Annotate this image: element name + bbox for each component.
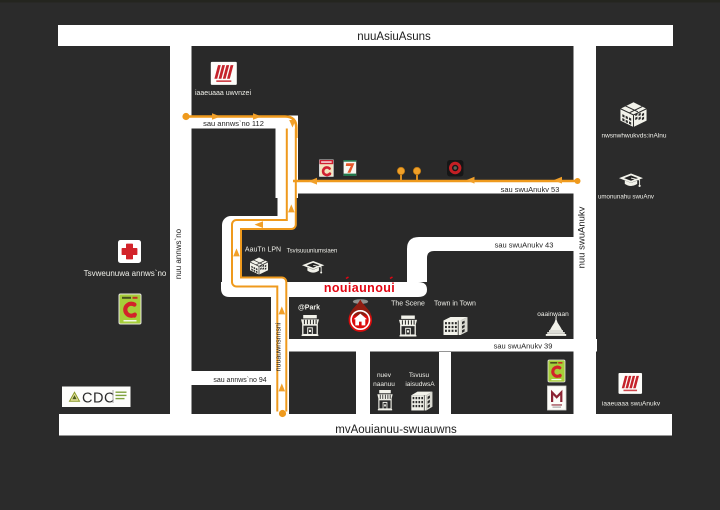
svg-text:AauTn LPN: AauTn LPN bbox=[245, 247, 281, 254]
svg-text:naanuu: naanuu bbox=[373, 381, 395, 388]
svg-text:iaaeuaaa swuAnukv: iaaeuaaa swuAnukv bbox=[602, 401, 661, 408]
svg-text:nuuauwnsnnsni: nuuauwnsnnsni bbox=[275, 322, 282, 371]
svg-text:iaisudwsA: iaisudwsA bbox=[405, 381, 435, 388]
svg-text:nouiaunoui: nouiaunoui bbox=[324, 281, 395, 295]
svg-text:sau annws`no 94: sau annws`no 94 bbox=[213, 377, 266, 384]
svg-text:nuu annws`no: nuu annws`no bbox=[174, 228, 183, 279]
svg-text:Tsvusu: Tsvusu bbox=[409, 372, 430, 379]
svg-text:sau swuAnukv 53: sau swuAnukv 53 bbox=[501, 185, 560, 194]
svg-text:nuuAsiuAsuns: nuuAsiuAsuns bbox=[357, 31, 431, 43]
svg-text:Tsvisuuuniumsiaen: Tsvisuuuniumsiaen bbox=[287, 249, 338, 255]
svg-text:The Scene: The Scene bbox=[391, 301, 425, 308]
svg-text:Town in Town: Town in Town bbox=[434, 301, 476, 308]
svg-text:mvAouianuu-swuauwns: mvAouianuu-swuauwns bbox=[335, 424, 457, 436]
svg-text:Tsvweunuwa annws`no: Tsvweunuwa annws`no bbox=[84, 269, 167, 278]
svg-text:sau swuAnukv 43: sau swuAnukv 43 bbox=[495, 241, 554, 250]
svg-text:@Park: @Park bbox=[298, 305, 320, 312]
svg-text:umonunahu swuAnv: umonunahu swuAnv bbox=[598, 194, 655, 201]
svg-text:oaainwaan: oaainwaan bbox=[537, 311, 569, 318]
svg-text:nuev: nuev bbox=[377, 372, 392, 379]
svg-text:iaaeuaaa uwvnzei: iaaeuaaa uwvnzei bbox=[195, 90, 251, 97]
svg-text:sau annws`no 112: sau annws`no 112 bbox=[203, 119, 264, 128]
svg-text:sau swuAnukv 39: sau swuAnukv 39 bbox=[494, 342, 553, 351]
svg-text:nuu swuAnukv: nuu swuAnukv bbox=[577, 206, 588, 268]
svg-text:CDC: CDC bbox=[82, 391, 115, 407]
svg-text:nwsnwhwukvds:inAlnu: nwsnwhwukvds:inAlnu bbox=[601, 133, 666, 140]
